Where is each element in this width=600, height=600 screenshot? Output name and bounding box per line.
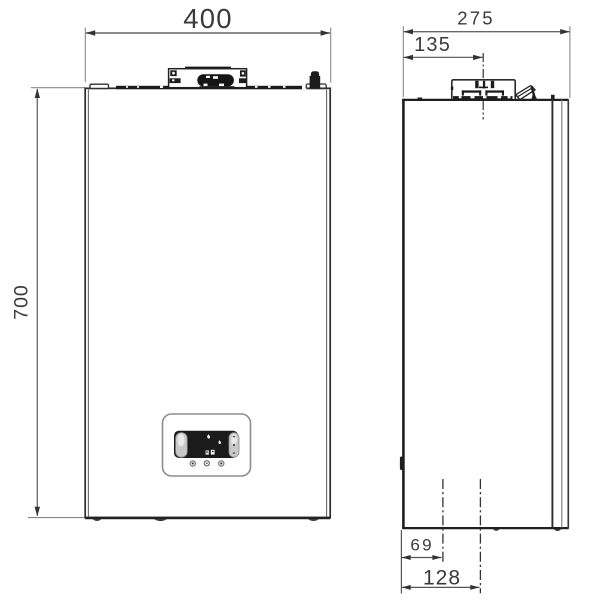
svg-text:69: 69: [410, 536, 434, 555]
svg-text:400: 400: [183, 3, 232, 34]
svg-text:275: 275: [457, 8, 494, 29]
svg-text:128: 128: [423, 567, 461, 590]
svg-text:135: 135: [414, 34, 451, 56]
svg-text:700: 700: [11, 284, 33, 320]
